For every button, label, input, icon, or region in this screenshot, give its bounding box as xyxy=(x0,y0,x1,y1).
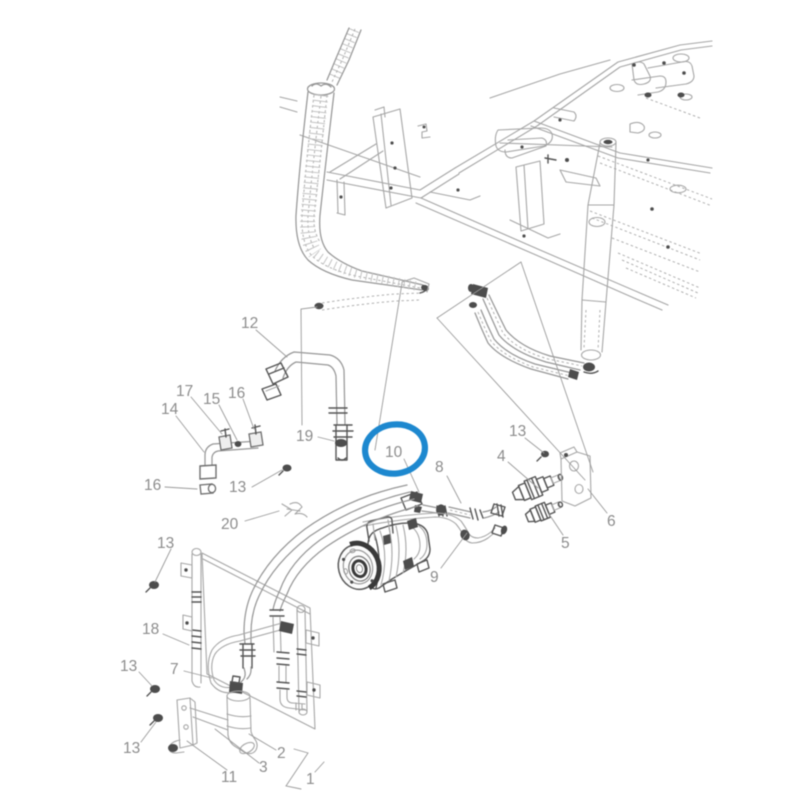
svg-text:6: 6 xyxy=(607,513,616,530)
svg-text:10: 10 xyxy=(385,444,403,461)
svg-text:13: 13 xyxy=(157,535,174,552)
svg-text:11: 11 xyxy=(221,769,237,786)
svg-text:13: 13 xyxy=(120,658,137,675)
svg-text:14: 14 xyxy=(161,401,179,418)
svg-text:20: 20 xyxy=(221,516,239,533)
svg-text:8: 8 xyxy=(435,459,444,476)
svg-text:9: 9 xyxy=(430,569,439,586)
svg-text:13: 13 xyxy=(229,479,246,496)
svg-text:1: 1 xyxy=(306,771,315,788)
svg-text:15: 15 xyxy=(203,391,220,408)
svg-text:13: 13 xyxy=(123,740,140,757)
svg-text:16: 16 xyxy=(144,477,161,494)
svg-text:2: 2 xyxy=(277,745,286,762)
svg-text:7: 7 xyxy=(170,661,179,678)
svg-text:19: 19 xyxy=(296,428,313,445)
svg-text:18: 18 xyxy=(142,621,159,638)
svg-text:3: 3 xyxy=(259,759,268,776)
svg-text:12: 12 xyxy=(241,315,258,332)
svg-text:13: 13 xyxy=(509,423,526,440)
svg-text:17: 17 xyxy=(176,383,193,400)
svg-text:5: 5 xyxy=(561,535,570,552)
svg-text:4: 4 xyxy=(497,448,506,465)
svg-text:16: 16 xyxy=(228,385,245,402)
